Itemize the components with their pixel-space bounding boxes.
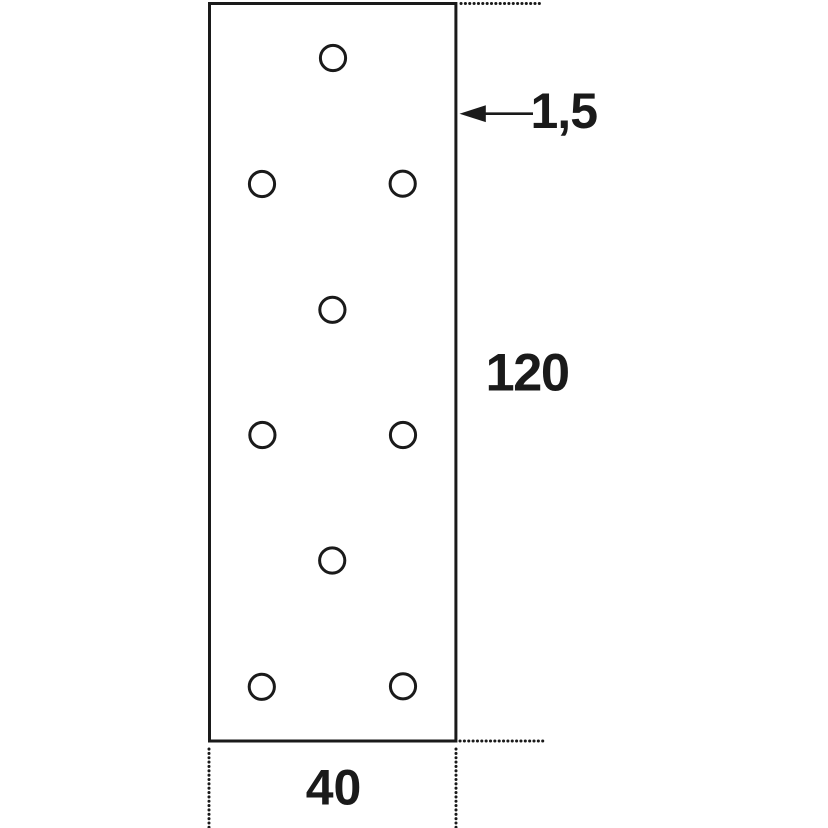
svg-text:1,5: 1,5 [531, 83, 598, 139]
svg-text:120: 120 [485, 344, 568, 403]
svg-text:40: 40 [306, 760, 362, 816]
